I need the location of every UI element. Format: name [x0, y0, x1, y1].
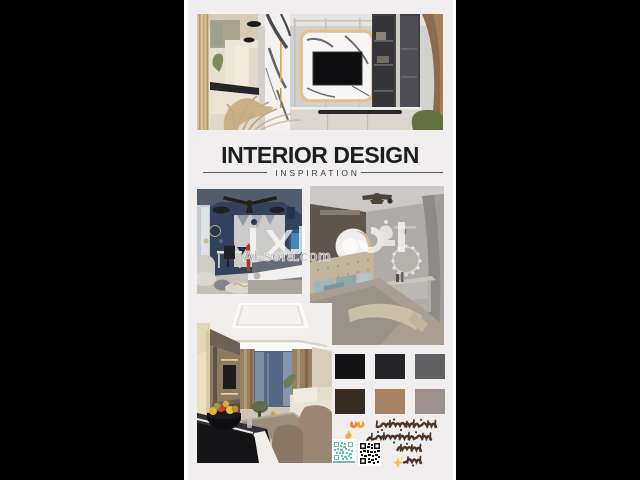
svg-text:Al-sora.com: Al-sora.com [243, 249, 331, 265]
